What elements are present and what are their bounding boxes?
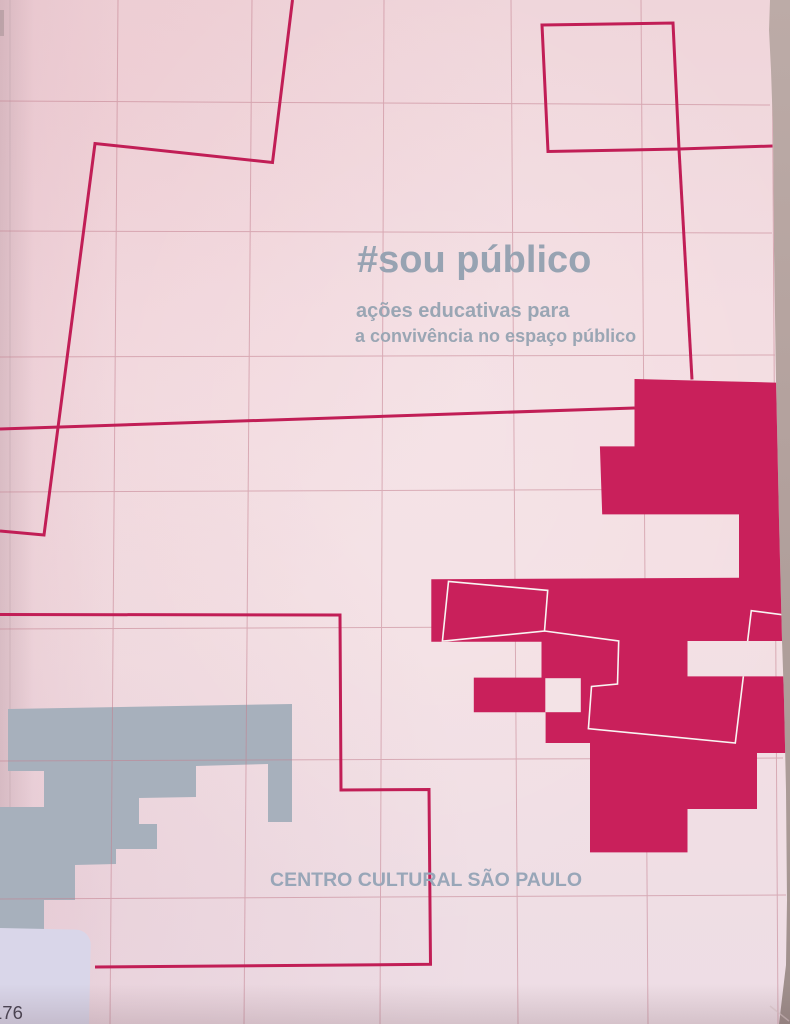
svg-text:#sou público: #sou público: [357, 239, 591, 281]
svg-text:ações educativas para: ações educativas para: [356, 300, 570, 322]
svg-text:CENTRO CULTURAL SÃO PAULO: CENTRO CULTURAL SÃO PAULO: [270, 868, 582, 891]
svg-text:a convivência no espaço públic: a convivência no espaço público: [355, 326, 636, 346]
